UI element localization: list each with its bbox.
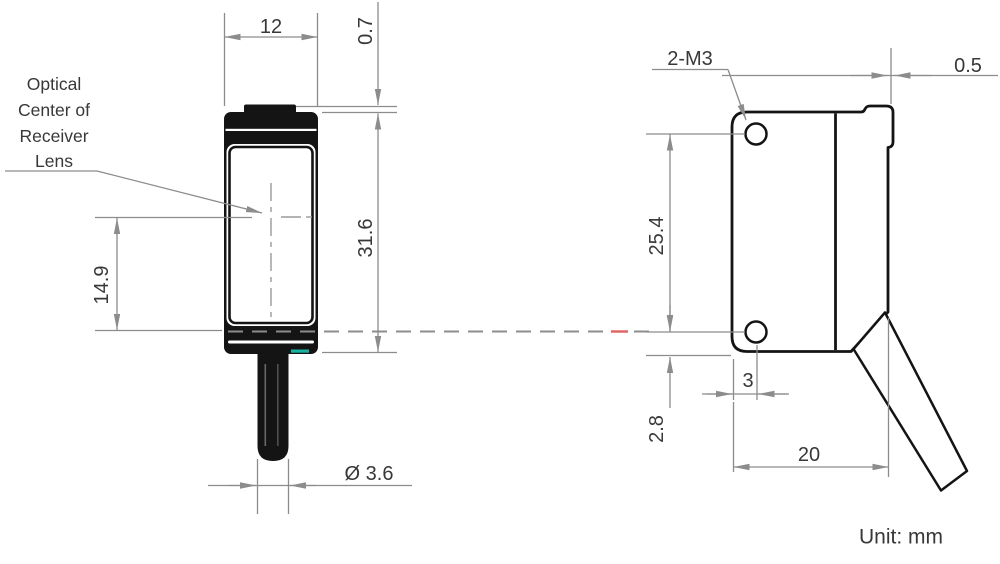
optical-label-line3: Receiver — [19, 126, 88, 146]
dim-hole-inset-text: 3 — [742, 370, 753, 392]
front-cable-stub — [258, 354, 289, 461]
mounting-hole-bottom — [746, 322, 767, 343]
dim-optical-center-text: 14.9 — [91, 266, 113, 305]
side-view — [732, 106, 967, 491]
side-cable — [854, 313, 968, 491]
dim-mounting-hole-text: 2-M3 — [667, 48, 713, 70]
optical-label-line4: Lens — [35, 151, 73, 171]
dim-hole-pitch-text: 25.4 — [646, 217, 668, 256]
dim-lens-offset-text: 0.7 — [355, 17, 377, 45]
cable-highlight-left — [265, 364, 267, 446]
front-led-indicator — [291, 350, 309, 353]
dim-depth-text: 20 — [798, 444, 820, 466]
front-top-seam — [226, 129, 317, 131]
dim-cable-diameter-text: Ø 3.6 — [345, 463, 394, 485]
optical-label-line1: Optical — [27, 74, 81, 94]
dim-width-text: 12 — [260, 16, 282, 38]
dim-lens-protrusion-text: 0.5 — [954, 55, 982, 77]
dim-height-text: 31.6 — [355, 219, 377, 258]
mounting-hole-top — [746, 124, 767, 145]
sensor-drawing-svg: Optical Center of Receiver Lens 12 0.7 3… — [0, 0, 1000, 564]
dim-bottom-edge-text: 2.8 — [646, 415, 668, 443]
front-bottom-seam — [228, 341, 314, 344]
front-view — [224, 105, 318, 462]
cable-highlight-right — [277, 364, 279, 446]
unit-note: Unit: mm — [859, 525, 943, 548]
dimension-drawing-canvas: Optical Center of Receiver Lens 12 0.7 3… — [0, 0, 1000, 564]
optical-label-line2: Center of — [18, 100, 90, 120]
